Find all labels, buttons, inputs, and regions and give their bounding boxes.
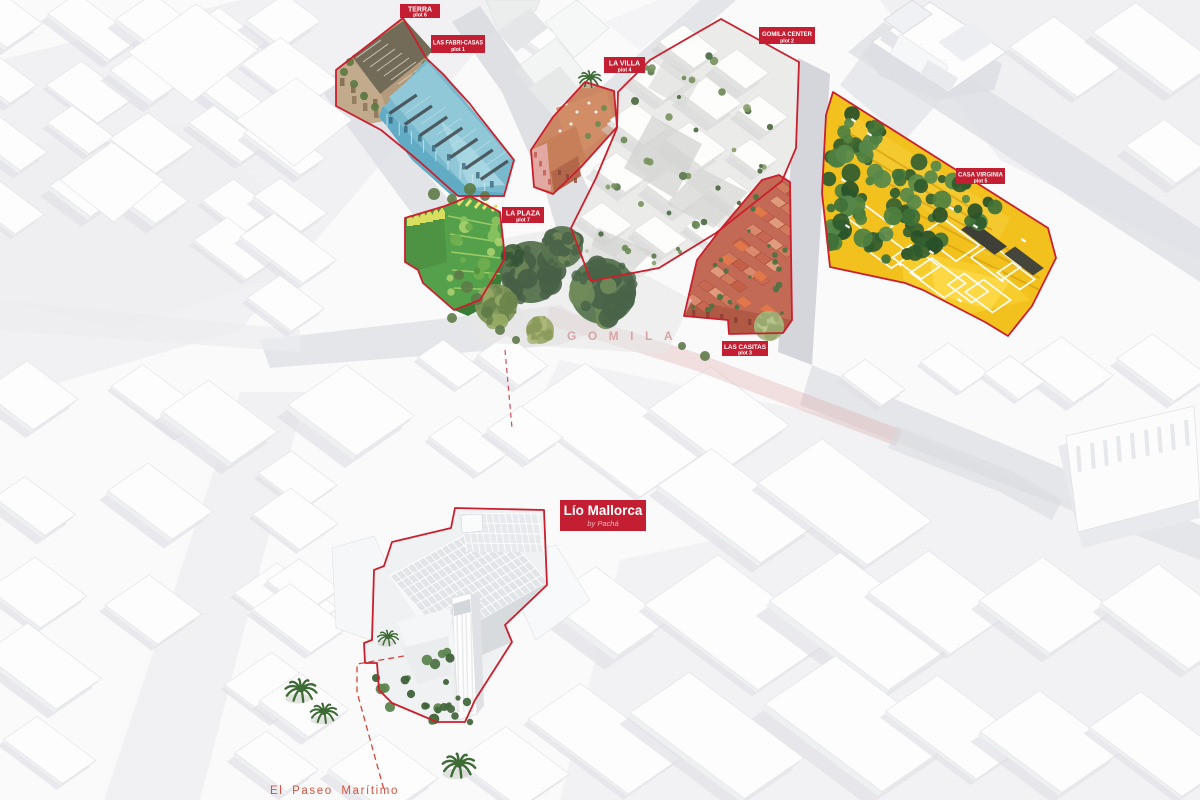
svg-text:Lío Mallorca: Lío Mallorca [564, 503, 643, 518]
svg-text:plot 7: plot 7 [516, 217, 530, 223]
svg-text:plot 4: plot 4 [618, 67, 632, 73]
svg-text:El Paseo Marítimo: El Paseo Marítimo [270, 785, 399, 797]
svg-text:LAS FABRI-CASAS: LAS FABRI-CASAS [433, 40, 484, 47]
svg-text:GOMILA CENTER: GOMILA CENTER [762, 31, 812, 38]
svg-text:plot 2: plot 2 [780, 38, 794, 44]
svg-text:by Pachá: by Pachá [587, 519, 618, 528]
svg-text:plot 1: plot 1 [451, 47, 465, 53]
svg-text:plot 3: plot 3 [738, 351, 752, 357]
svg-text:plot 6: plot 6 [413, 13, 427, 19]
svg-text:plot 5: plot 5 [974, 178, 988, 184]
svg-text:GOMILA: GOMILA [567, 329, 684, 343]
